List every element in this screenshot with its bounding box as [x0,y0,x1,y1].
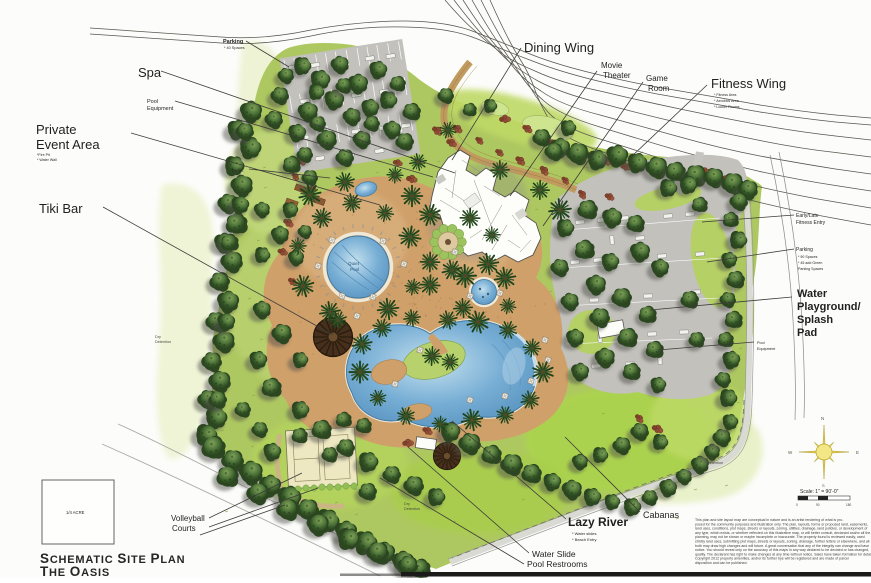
svg-text:Parking: Parking [796,247,813,253]
svg-text:Courts: Courts [172,524,196,533]
svg-text:E: E [856,450,859,455]
svg-text:disposition and can be publish: disposition and can be published. [695,561,747,565]
svg-text:Water: Water [797,288,828,300]
svg-text:Detention: Detention [155,340,171,344]
svg-text:Dry: Dry [707,456,713,460]
svg-text:90: 90 [816,503,820,507]
svg-text:* Water Wall: * Water Wall [37,158,57,162]
svg-text:Room: Room [648,84,670,93]
svg-text:180: 180 [846,503,852,507]
svg-text:Detention: Detention [707,461,723,465]
svg-text:Pool: Pool [350,267,359,272]
svg-text:Early/Late: Early/Late [796,213,819,219]
svg-text:* Fitness Area: * Fitness Area [714,93,736,97]
svg-text:Movie: Movie [601,61,623,70]
svg-text:Dining Wing: Dining Wing [524,40,594,55]
svg-text:Parking: Parking [223,39,243,45]
svg-text:Lazy River: Lazy River [568,515,628,529]
svg-text:1/4 ACRE: 1/4 ACRE [66,510,85,515]
svg-text:Pool: Pool [757,341,765,345]
svg-text:Volleyball: Volleyball [171,514,205,523]
svg-text:* Locker Rooms: * Locker Rooms [714,105,740,109]
svg-text:Quiet: Quiet [348,261,360,266]
svg-text:Event Area: Event Area [36,137,100,152]
svg-text:Equipment: Equipment [147,106,174,112]
svg-text:Trellis: Trellis [231,168,244,173]
svg-text:Theater: Theater [603,71,631,80]
svg-text:S: S [822,483,825,488]
svg-text:Pool: Pool [147,99,158,105]
svg-text:THE OASIS: THE OASIS [40,564,110,578]
svg-text:*Fire Pit: *Fire Pit [37,153,50,157]
svg-text:* Water slides: * Water slides [572,531,597,536]
svg-text:SCHEMATIC SITE PLAN: SCHEMATIC SITE PLAN [40,551,185,566]
svg-text:Playground/: Playground/ [797,301,861,313]
svg-text:Splash: Splash [797,314,833,326]
svg-text:Dry: Dry [404,502,410,506]
svg-text:Private: Private [36,122,76,137]
svg-text:Fitness Entry: Fitness Entry [796,220,826,226]
svg-text:Pool Restrooms: Pool Restrooms [527,559,587,569]
svg-text:Parking Spaces: Parking Spaces [798,267,823,271]
svg-text:Pad: Pad [797,327,817,339]
svg-text:* Aerobics Area: * Aerobics Area [714,99,739,103]
svg-text:Fitness Wing: Fitness Wing [711,76,786,91]
svg-text:Detention: Detention [404,507,420,511]
svg-text:N: N [821,416,824,421]
svg-text:Tiki Bar: Tiki Bar [39,201,83,216]
svg-text:Spa: Spa [138,65,162,80]
svg-text:* Beach Entry: * Beach Entry [572,537,596,542]
svg-text:Equipment: Equipment [757,347,776,351]
svg-text:0: 0 [796,503,798,507]
svg-text:Cabanas: Cabanas [643,510,680,520]
svg-text:* 90 Spaces: * 90 Spaces [798,255,818,259]
svg-text:* 40 Spaces: * 40 Spaces [224,46,245,50]
svg-text:Game: Game [646,74,668,83]
svg-text:Dry: Dry [155,335,161,339]
svg-text:* 45 add Green: * 45 add Green [798,261,822,265]
svg-text:Water Slide: Water Slide [532,549,576,559]
svg-text:Scale: 1" = 90’-0": Scale: 1" = 90’-0" [800,489,839,495]
